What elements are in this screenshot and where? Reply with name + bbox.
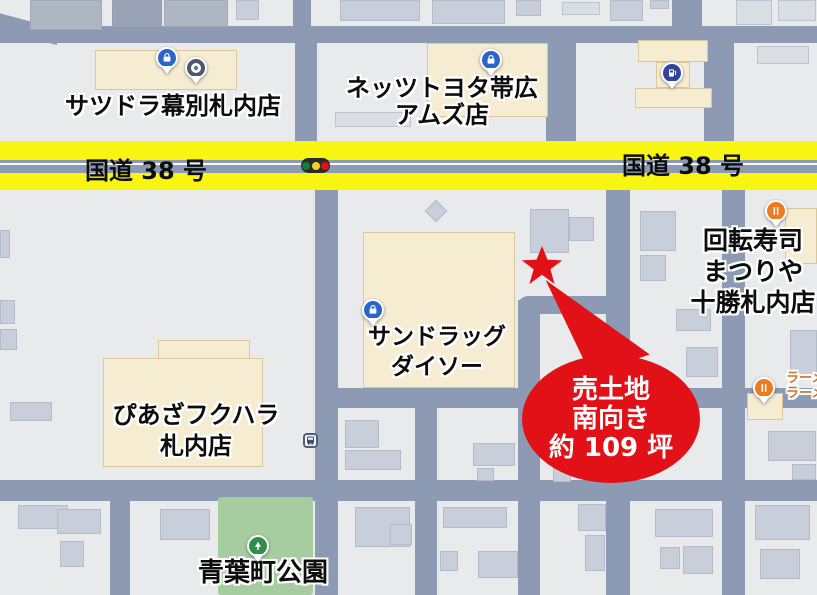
building [655, 509, 713, 537]
map-canvas: 国道 38 号 国道 38 号 サツドラ幕別札内店 ネッツトヨタ帯広 アムズ店 … [0, 0, 817, 595]
shop-pin [362, 299, 384, 321]
road-segment [672, 0, 702, 30]
road-segment [295, 40, 317, 144]
building [768, 431, 816, 461]
fuel-pump-icon [666, 67, 678, 79]
building [160, 509, 210, 540]
building [390, 524, 412, 545]
label-line: ラーメン [786, 371, 817, 386]
building [432, 0, 505, 24]
building [57, 509, 101, 534]
building [473, 443, 515, 466]
building [755, 505, 810, 540]
building [778, 0, 816, 21]
shopping-bag-icon [161, 52, 173, 64]
building [60, 541, 84, 567]
building [569, 217, 594, 241]
traffic-light-icon [301, 158, 330, 173]
shop-pin [156, 47, 178, 69]
building-fuel-station [638, 40, 708, 62]
label-line: ラーメン [786, 386, 817, 401]
road-segment [293, 0, 311, 30]
building [443, 507, 507, 528]
label-kaitenzushi: 回転寿司 まつりや 十勝札内店 [690, 225, 815, 318]
building [112, 0, 162, 27]
building [640, 255, 666, 281]
bus-stop-icon [303, 433, 318, 448]
label-line: アムズ店 [346, 102, 538, 129]
label-line: ネッツトヨタ帯広 [346, 75, 538, 102]
highway-label-left: 国道 38 号 [85, 156, 207, 186]
building [10, 402, 52, 421]
fuel-pin [661, 62, 683, 84]
building [516, 0, 541, 16]
road-segment [546, 40, 576, 144]
shopping-bag-icon [485, 54, 497, 66]
building [30, 0, 102, 30]
building [792, 464, 816, 480]
building [640, 211, 676, 251]
road-segment [0, 480, 817, 501]
callout-line2: 南向き [572, 405, 650, 434]
dot-pin [185, 57, 207, 79]
restaurant-icon [758, 382, 770, 394]
label-netz-toyota: ネッツトヨタ帯広 アムズ店 [346, 75, 538, 129]
tree-icon [252, 540, 264, 552]
building [0, 300, 15, 324]
label-ramen: ラーメン ラーメン [786, 371, 817, 401]
building [610, 0, 643, 21]
building [683, 546, 713, 574]
label-line: 札内店 [113, 431, 280, 462]
label-line: 十勝札内店 [690, 287, 815, 318]
building [236, 0, 259, 20]
label-satsudora: サツドラ幕別札内店 [65, 91, 281, 121]
highway-label-right: 国道 38 号 [622, 151, 744, 181]
building [650, 0, 669, 9]
dot-icon [190, 62, 202, 74]
callout-line3: 約 109 坪 [549, 434, 673, 463]
shopping-bag-icon [367, 304, 379, 316]
park-pin [247, 535, 269, 557]
label-line: ぴあざフクハラ [113, 400, 280, 431]
building [440, 551, 458, 571]
shop-pin [480, 49, 502, 71]
label-sundrug-daiso: サンドラッグ ダイソー [368, 322, 506, 382]
restaurant-pin [765, 200, 787, 222]
building [164, 0, 228, 27]
building [345, 450, 401, 470]
label-line: まつりや [690, 256, 815, 287]
label-line: サツドラ幕別札内店 [65, 91, 281, 121]
building [345, 420, 379, 448]
building [686, 347, 718, 377]
building [0, 329, 17, 350]
label-line: 回転寿司 [690, 225, 815, 256]
callout-bubble: 売土地 南向き 約 109 坪 [522, 355, 700, 483]
building [757, 46, 809, 64]
label-piaza-fukuhara: ぴあざフクハラ 札内店 [113, 400, 280, 462]
building [477, 468, 494, 481]
building [530, 209, 569, 253]
building [585, 535, 605, 571]
building [660, 547, 680, 569]
building [0, 230, 10, 258]
building [578, 504, 606, 531]
building [478, 551, 518, 578]
restaurant-icon [770, 205, 782, 217]
building [760, 549, 800, 579]
building-piaza-fukuhara [158, 340, 250, 360]
bus-icon [306, 436, 315, 445]
building [425, 200, 448, 223]
building [340, 0, 420, 21]
building [736, 0, 772, 25]
callout-line1: 売土地 [572, 376, 650, 405]
building [562, 2, 600, 15]
building [790, 330, 817, 376]
label-line: サンドラッグ [368, 322, 506, 352]
restaurant-pin [753, 377, 775, 399]
label-line: ダイソー [368, 352, 506, 382]
